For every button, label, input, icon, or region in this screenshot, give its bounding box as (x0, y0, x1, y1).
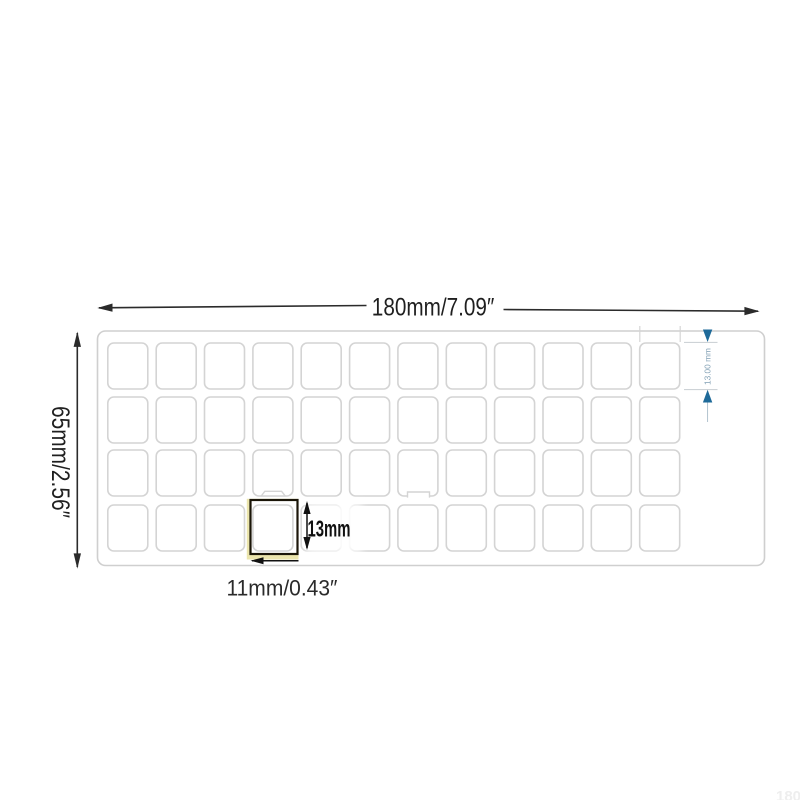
svg-text:13mm: 13mm (308, 516, 351, 542)
svg-text:180A: 180A (776, 788, 800, 800)
svg-text:180mm/7.09″: 180mm/7.09″ (372, 293, 495, 321)
svg-text:13.00 mm: 13.00 mm (703, 348, 713, 385)
svg-text:11mm/0.43″: 11mm/0.43″ (227, 576, 338, 601)
svg-text:65mm/2.56″: 65mm/2.56″ (46, 406, 74, 518)
